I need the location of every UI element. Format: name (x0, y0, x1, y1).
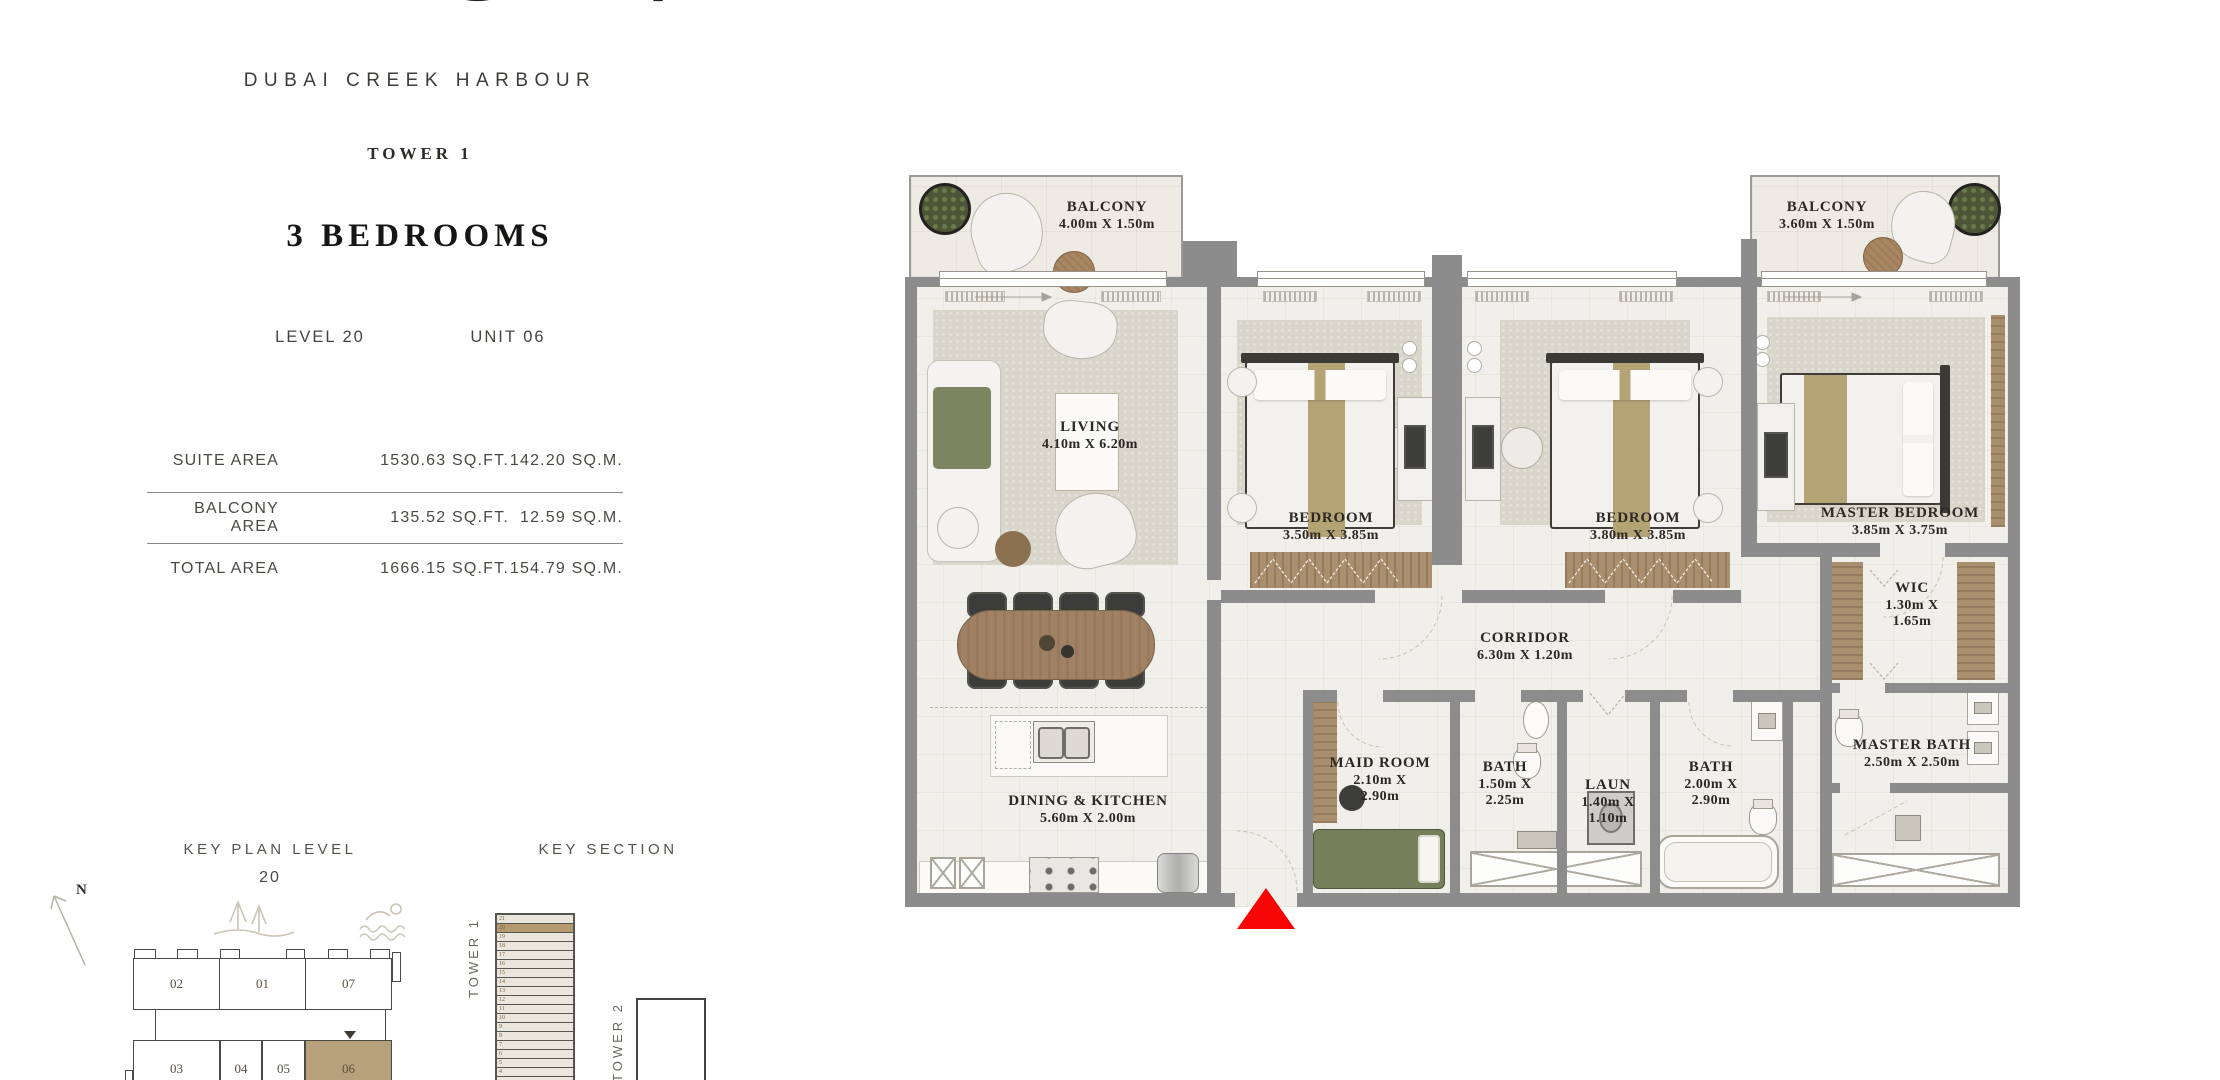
vanity-sink (1751, 701, 1783, 741)
room-name: BEDROOM (1590, 510, 1686, 527)
north-label: N (76, 882, 87, 899)
wall (1987, 277, 2020, 287)
tower1-floor-number: 5 (499, 1059, 502, 1067)
wall (1820, 557, 1832, 893)
brand-logo-text: AEON (170, 0, 690, 13)
bed-headboard (1241, 353, 1399, 363)
tower-name: TOWER 1 (70, 144, 770, 164)
bed (1245, 361, 1395, 529)
desk (1757, 403, 1795, 511)
room-name: BEDROOM (1283, 510, 1379, 527)
maid-bed (1313, 829, 1445, 889)
room-name: BATH (1470, 759, 1540, 776)
island-dashed-box (995, 721, 1031, 769)
blind-coil (1263, 291, 1317, 302)
tower1-section-label: TOWER 1 (466, 913, 481, 998)
pouf (995, 531, 1031, 567)
wall (1557, 690, 1567, 893)
room-dims: 2.00m X 2.90m (1676, 777, 1746, 809)
room-dims: 6.30m X 1.20m (1477, 648, 1573, 664)
tower1-floor-row: 11 (497, 1005, 573, 1014)
wall (2008, 277, 2020, 907)
key-plan-unit-01: 01 (219, 958, 306, 1010)
area-row-label: BALCONY AREA (147, 500, 279, 536)
blind-coil (1475, 291, 1529, 302)
room-dims: 3.80m X 3.85m (1590, 528, 1686, 544)
room-dims: 4.00m X 1.50m (1059, 217, 1155, 233)
wall (905, 277, 917, 907)
tower1-floors: 212019181716151413121110987654 (497, 915, 573, 1077)
desk (1397, 397, 1433, 501)
window (939, 271, 1167, 287)
blind-coil (1929, 291, 1983, 302)
key-plan-title: KEY PLAN LEVEL (105, 841, 435, 858)
tower1-floor-number: 16 (499, 960, 505, 968)
ceiling-light (1755, 352, 1770, 367)
key-plan-connector (155, 1010, 156, 1040)
entrance-marker (1237, 888, 1295, 929)
tower1-floor-row: 17 (497, 951, 573, 960)
unit-number: 01 (256, 976, 269, 992)
room-name: WIC (1879, 580, 1945, 597)
room-dims: 2.50m X 2.50m (1853, 755, 1971, 771)
tower1-floor-number: 6 (499, 1050, 502, 1058)
blind-coil (1767, 291, 1821, 302)
tower1-floor-row: 16 (497, 960, 573, 969)
wardrobe (1991, 315, 2005, 527)
ceiling-light (1402, 341, 1417, 356)
area-row-sqm: 12.59 SQ.M. (509, 509, 623, 527)
tower1-floor-number: 9 (499, 1023, 502, 1031)
room-label-bath-1: BATH 1.50m X 2.25m (1470, 759, 1540, 809)
wall (1521, 690, 1583, 702)
tower1-floor-row: 10 (497, 1014, 573, 1023)
north-arrow-icon (40, 880, 100, 970)
room-label-bedroom-2: BEDROOM 3.80m X 3.85m (1590, 510, 1686, 544)
room-dims: 3.60m X 1.50m (1779, 217, 1875, 233)
tower1-floor-number: 17 (499, 951, 505, 959)
wall (1303, 690, 1313, 893)
closet (1470, 851, 1642, 887)
table-row: BALCONY AREA 135.52 SQ.FT. 12.59 SQ.M. (147, 492, 623, 543)
wall (1462, 590, 1605, 603)
room-name: BATH (1676, 759, 1746, 776)
room-label-bedroom-1: BEDROOM 3.50m X 3.85m (1283, 510, 1379, 544)
bed (1780, 373, 1942, 505)
bed-headboard (1940, 365, 1950, 513)
room-label-master-bedroom: MASTER BEDROOM 3.85m X 3.75m (1821, 505, 1979, 539)
area-row-sqft: 1666.15 SQ.FT. (279, 560, 509, 578)
room-name: BALCONY (1059, 199, 1155, 216)
key-plan-unit-02: 02 (133, 958, 220, 1010)
tower1-floor-number: 14 (499, 978, 505, 986)
cabinet (959, 857, 985, 889)
key-plan-annex (392, 952, 401, 982)
wall (1650, 690, 1660, 893)
unit-number: 03 (170, 1061, 183, 1077)
key-plan-level-number: 20 (105, 869, 435, 887)
wall (1432, 277, 1462, 565)
room-label-master-bath: MASTER BATH 2.50m X 2.50m (1853, 737, 1971, 771)
room-dims: 1.30m X 1.65m (1879, 598, 1945, 630)
floor-plan: BALCONY 4.00m X 1.50m BALCONY 3.60m X 1.… (905, 175, 2025, 975)
wall (1450, 690, 1460, 893)
tower1-floor-number: 13 (499, 987, 505, 995)
tower1-floor-number: 21 (499, 915, 505, 923)
blind-coil (1367, 291, 1421, 302)
desk-chair (1501, 427, 1543, 469)
tower2-section (636, 998, 706, 1080)
side-table (1693, 367, 1723, 397)
tower2-section-label: TOWER 2 (610, 992, 625, 1080)
area-row-label: TOTAL AREA (147, 560, 279, 578)
unit-number: 02 (170, 976, 183, 992)
unit-number: 06 (342, 1061, 355, 1077)
room-label-balcony-left: BALCONY 4.00m X 1.50m (1059, 199, 1155, 233)
stove (1029, 857, 1099, 893)
key-plan-diagram: 02 01 07 03 04 05 06 (118, 945, 418, 1080)
room-dims: 2.10m X 2.90m (1344, 773, 1416, 805)
room-dims: 3.85m X 3.75m (1821, 523, 1979, 539)
tower1-floor-number: 18 (499, 942, 505, 950)
plant-pot (1948, 183, 2001, 236)
wardrobe (1565, 552, 1730, 588)
table-row: TOTAL AREA 1666.15 SQ.FT. 154.79 SQ.M. (147, 543, 623, 594)
table-row: SUITE AREA 1530.63 SQ.FT. 142.20 SQ.M. (147, 448, 623, 492)
tower1-floor-number: 15 (499, 969, 505, 977)
room-dims: 3.50m X 3.85m (1283, 528, 1379, 544)
room-label-wic: WIC 1.30m X 1.65m (1879, 580, 1945, 630)
tower1-floor-row: 19 (497, 933, 573, 942)
sink (1523, 701, 1549, 739)
wall (1783, 690, 1793, 893)
room-label-dining-kitchen: DINING & KITCHEN 5.60m X 2.00m (1008, 793, 1167, 827)
wall (1673, 590, 1741, 603)
key-section-title: KEY SECTION (498, 841, 718, 858)
table-bowl (1061, 645, 1074, 658)
room-name: CORRIDOR (1477, 630, 1573, 647)
unit-number: 07 (342, 976, 355, 992)
swimmer-icon (356, 900, 414, 942)
closet (1832, 853, 2000, 887)
tower1-floor-number: 4 (499, 1068, 502, 1076)
wall (1207, 600, 1221, 893)
kitchen-sink (1033, 721, 1095, 763)
vanity-sink (1967, 691, 1999, 725)
ceiling-light (1755, 335, 1770, 350)
toilet (1749, 803, 1777, 835)
wall (1741, 277, 1757, 557)
blind-coil (1619, 291, 1673, 302)
tower1-floor-row: 9 (497, 1023, 573, 1032)
level-label: LEVEL 20 (275, 328, 365, 347)
room-name: MASTER BEDROOM (1821, 505, 1979, 522)
dining-table (957, 610, 1155, 680)
tower1-floor-number: 11 (499, 1005, 505, 1013)
wall (1221, 590, 1375, 603)
bathtub (1657, 835, 1779, 889)
window (1761, 271, 1987, 287)
key-plan-notch (125, 1070, 133, 1080)
room-name: MASTER BATH (1853, 737, 1971, 754)
key-plan-unit-05: 05 (262, 1040, 305, 1080)
wall (1890, 783, 2008, 793)
key-plan-unit-07: 07 (305, 958, 392, 1010)
kitchen-zone-line (930, 707, 1208, 708)
project-name: DUBAI CREEK HARBOUR (70, 70, 770, 92)
side-table (1227, 493, 1257, 523)
room-label-maid-room: MAID ROOM 2.10m X 2.90m (1330, 755, 1431, 805)
area-row-sqft: 1530.63 SQ.FT. (279, 452, 509, 470)
wall (1383, 690, 1475, 702)
area-row-label: SUITE AREA (147, 452, 279, 470)
side-table (1693, 493, 1723, 523)
area-table: SUITE AREA 1530.63 SQ.FT. 142.20 SQ.M. B… (147, 448, 623, 594)
ceiling-light (1467, 341, 1482, 356)
room-name: BALCONY (1779, 199, 1875, 216)
room-dims: 1.50m X 2.25m (1470, 777, 1540, 809)
room-label-corridor: CORRIDOR 6.30m X 1.20m (1477, 630, 1573, 664)
window (1257, 271, 1425, 287)
unit-label: UNIT 06 (470, 328, 545, 347)
desk (1465, 397, 1501, 501)
brand-logo-cropped: AEON (170, 0, 690, 13)
sofa-throw (933, 387, 991, 469)
wall (1885, 683, 2008, 693)
key-plan-unit-marker (344, 1031, 356, 1039)
tower1-floor-row: 20 (497, 924, 573, 933)
tower1-floor-row: 4 (497, 1068, 573, 1077)
table-bowl (1039, 635, 1055, 651)
tower1-floor-row: 21 (497, 915, 573, 924)
appliance (1157, 853, 1199, 893)
wall (1945, 543, 2008, 557)
key-plan-unit-03: 03 (133, 1040, 220, 1080)
key-plan-unit-04: 04 (220, 1040, 262, 1080)
tower1-floor-number: 8 (499, 1032, 502, 1040)
room-name: MAID ROOM (1330, 755, 1431, 772)
room-dims: 5.60m X 2.00m (1008, 811, 1167, 827)
room-name: LIVING (1042, 419, 1138, 436)
room-label-balcony-right: BALCONY 3.60m X 1.50m (1779, 199, 1875, 233)
unit-number: 05 (277, 1061, 290, 1077)
sofa-cushion (937, 507, 979, 549)
room-label-bath-2: BATH 2.00m X 2.90m (1676, 759, 1746, 809)
vanity-sink (1967, 731, 1999, 765)
wall (1733, 690, 1820, 702)
tower1-floor-row: 7 (497, 1041, 573, 1050)
cabinet (930, 857, 956, 889)
tower1-floor-number: 12 (499, 996, 505, 1004)
wall (1755, 543, 1880, 557)
tower1-floor-number: 20 (499, 924, 505, 932)
tower1-floor-row: 18 (497, 942, 573, 951)
wall (905, 893, 1235, 907)
tower1-section: 212019181716151413121110987654 (495, 913, 575, 1080)
tower1-floor-number: 19 (499, 933, 505, 941)
unit-number: 04 (235, 1061, 248, 1077)
wic-closet (1957, 562, 1995, 680)
blind-coil (945, 291, 1005, 302)
key-plan-unit-06-highlighted: 06 (305, 1040, 392, 1080)
room-dims: 1.40m X 1.10m (1578, 795, 1638, 827)
wall (905, 277, 939, 287)
trees-icon (208, 894, 300, 938)
tower1-floor-row: 14 (497, 978, 573, 987)
bed (1550, 361, 1700, 529)
wall (1820, 783, 1840, 793)
room-label-laundry: LAUN 1.40m X 1.10m (1578, 777, 1638, 827)
area-row-sqm: 154.79 SQ.M. (509, 560, 623, 578)
room-name: LAUN (1578, 777, 1638, 794)
tower1-floor-number: 7 (499, 1041, 502, 1049)
shower-fixture (1517, 831, 1557, 849)
tower1-floor-row: 8 (497, 1032, 573, 1041)
tower1-floor-row: 5 (497, 1059, 573, 1068)
window (1467, 271, 1677, 287)
tower1-floor-row: 6 (497, 1050, 573, 1059)
tower1-floor-number: 10 (499, 1014, 505, 1022)
shower-fixture (1895, 815, 1921, 841)
tower1-floor-row: 13 (497, 987, 573, 996)
ceiling-light (1467, 358, 1482, 373)
wall (1820, 683, 1840, 693)
blind-coil (1101, 291, 1161, 302)
wall (1207, 277, 1221, 580)
tower1-floor-row: 15 (497, 969, 573, 978)
room-dims: 4.10m X 6.20m (1042, 437, 1138, 453)
ceiling-light (1402, 358, 1417, 373)
tower1-floor-row: 12 (497, 996, 573, 1005)
bed-headboard (1546, 353, 1704, 363)
brochure-page: AEON DUBAI CREEK HARBOUR TOWER 1 3 BEDRO… (0, 0, 2220, 1080)
wall (1297, 893, 2020, 907)
key-plan-connector (385, 1010, 386, 1040)
area-row-sqft: 135.52 SQ.FT. (279, 509, 509, 527)
wardrobe (1250, 552, 1432, 588)
room-label-living: LIVING 4.10m X 6.20m (1042, 419, 1138, 453)
room-name: DINING & KITCHEN (1008, 793, 1167, 810)
plant-pot (919, 183, 971, 235)
side-table (1227, 367, 1257, 397)
unit-type-title: 3 BEDROOMS (70, 218, 770, 255)
area-row-sqm: 142.20 SQ.M. (509, 452, 623, 470)
